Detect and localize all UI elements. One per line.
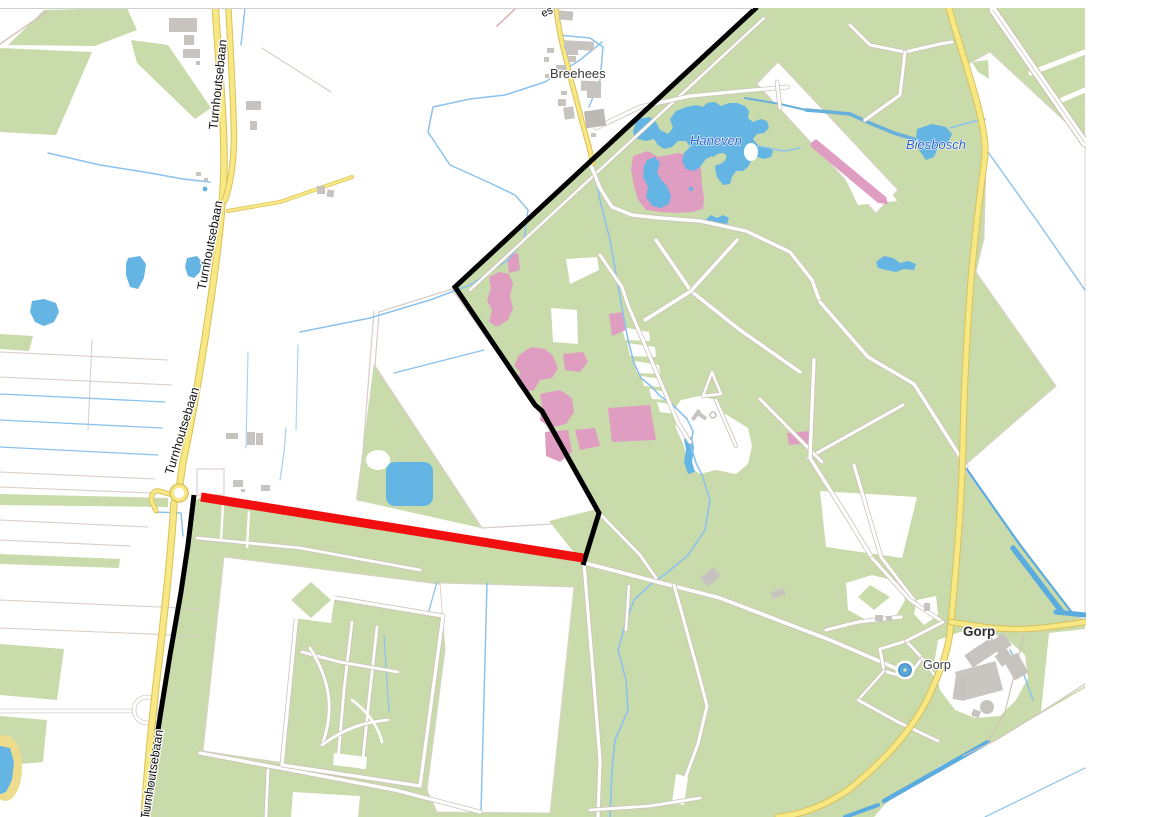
svg-text:Gorp: Gorp <box>963 624 995 639</box>
svg-text:Breehees: Breehees <box>550 66 606 81</box>
svg-text:Haneven: Haneven <box>690 133 742 148</box>
svg-text:Gorp: Gorp <box>923 658 951 672</box>
svg-text:Biesbosch: Biesbosch <box>906 137 966 152</box>
